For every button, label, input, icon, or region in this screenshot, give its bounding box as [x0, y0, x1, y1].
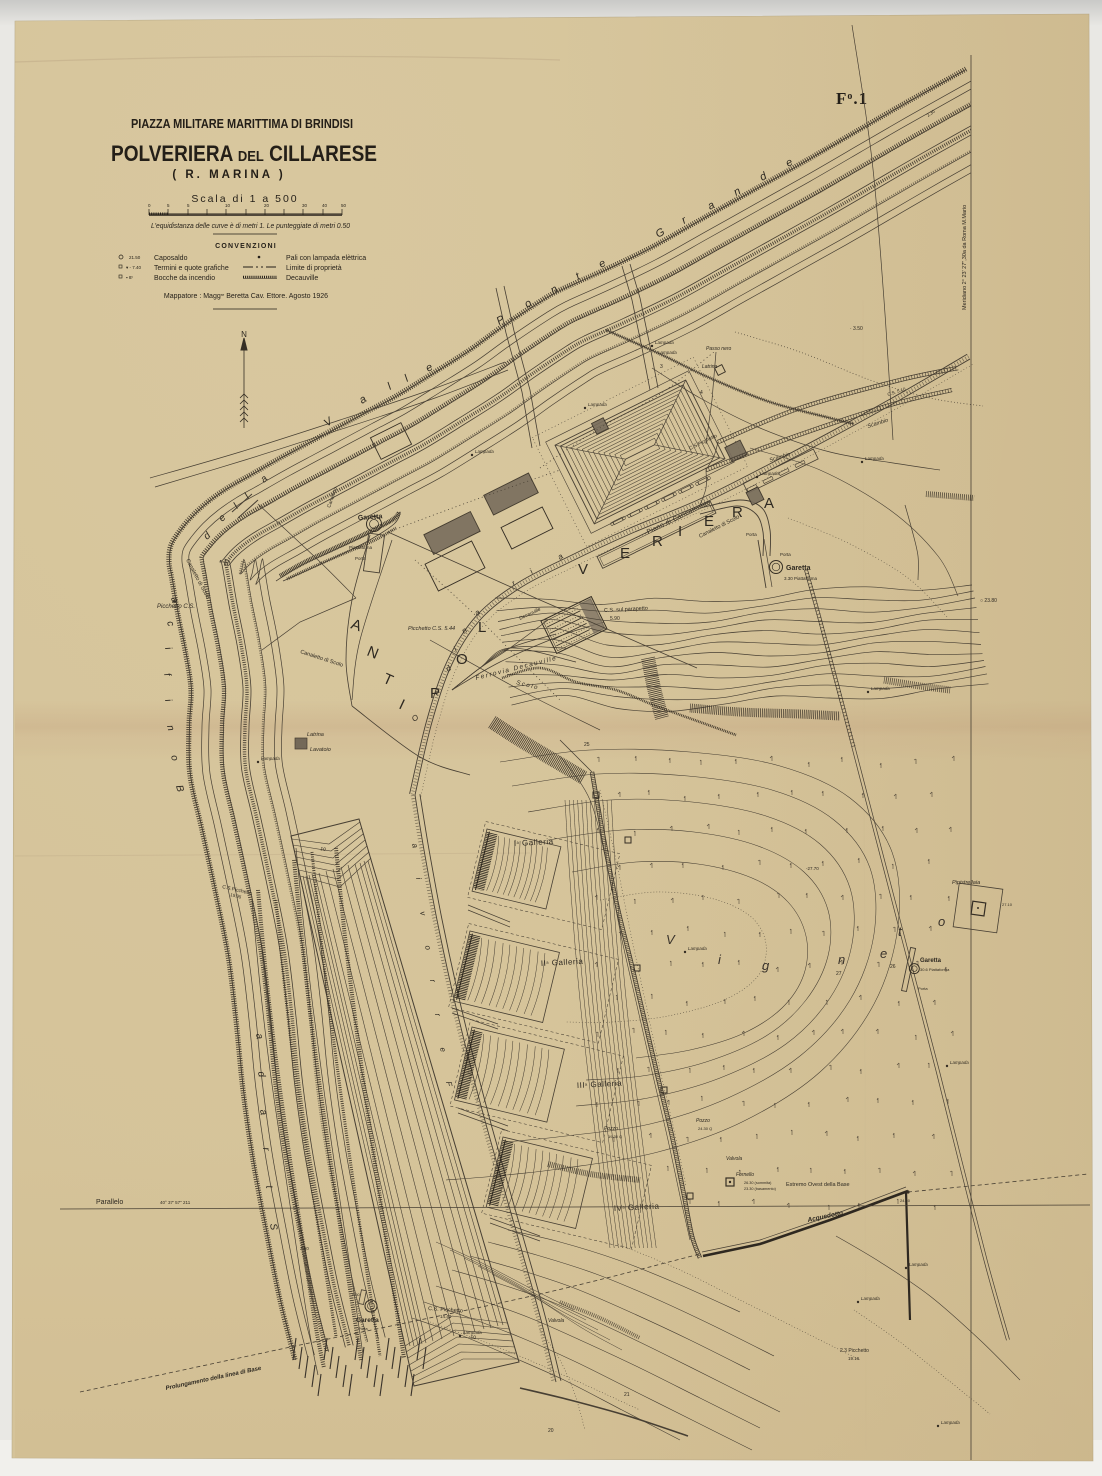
svg-text:E: E — [704, 513, 714, 530]
svg-text:27.10: 27.10 — [1002, 902, 1013, 907]
svg-text:Caposaldo: Caposaldo — [154, 255, 188, 262]
svg-text:Pali con lampada elèttrica: Pali con lampada elèttrica — [286, 255, 366, 262]
svg-text:26: 26 — [890, 964, 896, 970]
svg-text:○ 23.80: ○ 23.80 — [980, 598, 997, 604]
svg-text:Mappatore : Maggre Beretta Ca: Mappatore : Maggre Beretta Cav. Ettore. … — [164, 292, 328, 300]
svg-text:Lampada: Lampada — [760, 471, 779, 476]
svg-text:Termini e quote grafiche: Termini e quote grafiche — [154, 265, 229, 272]
svg-text:Piattaforma: Piattaforma — [349, 545, 373, 550]
svg-text:Porta: Porta — [746, 532, 757, 537]
svg-text:E: E — [620, 545, 630, 562]
svg-text:Lampada: Lampada — [688, 946, 707, 951]
svg-text:-27.70: -27.70 — [806, 866, 819, 871]
svg-text:L: L — [478, 619, 486, 636]
svg-text:50: 50 — [341, 203, 347, 208]
svg-text:Pozzo: Pozzo — [604, 1126, 618, 1132]
svg-text:PIAZZA MILITARE MARITTIMA DI B: PIAZZA MILITARE MARITTIMA DI BRINDISI — [131, 116, 353, 131]
svg-text:Lampada: Lampada — [658, 350, 677, 355]
svg-text:Porta: Porta — [918, 986, 928, 991]
svg-text:5.60: 5.60 — [352, 1292, 361, 1297]
svg-text:Bocche da incendio: Bocche da incendio — [154, 275, 215, 282]
svg-text:Decauville: Decauville — [286, 275, 318, 282]
svg-text:Lampada: Lampada — [941, 1420, 960, 1425]
svg-text:▾ - 7.40: ▾ - 7.40 — [126, 265, 142, 270]
svg-text:R: R — [732, 504, 743, 521]
svg-text:26.30 (sommita): 26.30 (sommita) — [744, 1181, 772, 1185]
svg-text:25: 25 — [584, 742, 590, 748]
svg-text:Picchetto C.S.: Picchetto C.S. — [157, 604, 195, 610]
svg-text:23.30 (basamento): 23.30 (basamento) — [744, 1187, 777, 1191]
svg-text:Lampada: Lampada — [871, 686, 890, 691]
svg-text:30: 30 — [302, 203, 308, 208]
svg-text:A: A — [764, 495, 774, 512]
svg-text:Lampada: Lampada — [655, 340, 674, 345]
svg-text:Limite di proprietà: Limite di proprietà — [286, 265, 342, 272]
svg-text:V: V — [666, 932, 676, 947]
svg-text:Lampada: Lampada — [588, 402, 607, 407]
svg-text:Lampada: Lampada — [909, 1262, 928, 1267]
svg-text:27: 27 — [836, 971, 842, 977]
svg-text:19.30 Q: 19.30 Q — [608, 1134, 622, 1139]
svg-text:Garetta: Garetta — [786, 565, 811, 572]
svg-text:V: V — [578, 561, 588, 578]
svg-text:Estremo Ovest della Base: Estremo Ovest della Base — [786, 1182, 850, 1188]
svg-text:2.80: 2.80 — [300, 1246, 309, 1251]
svg-text:10: 10 — [225, 203, 231, 208]
svg-text:Scala di 1 a 500: Scala di 1 a 500 — [191, 193, 298, 205]
svg-text:L'equidistanza delle curve è d: L'equidistanza delle curve è di metri 1.… — [151, 221, 350, 230]
svg-text:4: 4 — [700, 390, 703, 396]
svg-text:o: o — [938, 914, 945, 929]
svg-text:Pipistrellaia: Pipistrellaia — [952, 880, 980, 886]
svg-text:Porta: Porta — [358, 1326, 368, 1331]
svg-text:Fornello: Fornello — [736, 1172, 754, 1178]
svg-text:Lampada: Lampada — [950, 1060, 969, 1065]
svg-text:CONVENZIONI: CONVENZIONI — [215, 243, 277, 250]
svg-text:Porta: Porta — [355, 556, 366, 561]
svg-text:30.6 Piattaforma: 30.6 Piattaforma — [920, 967, 950, 972]
svg-text:Latrina: Latrina — [307, 732, 324, 738]
svg-text:Picchetto C.S. 5.44: Picchetto C.S. 5.44 — [408, 626, 455, 632]
svg-text:Meridiano 2° 23' 27",30a da: Meridiano 2° 23' 27",30a da Roma M.Mario — [962, 205, 968, 310]
svg-text:Garetta: Garetta — [356, 1317, 379, 1324]
svg-text:40° 37' 57" 211: 40° 37' 57" 211 — [160, 1200, 191, 1205]
svg-text:Lampada: Lampada — [261, 756, 280, 761]
svg-text:24.30: 24.30 — [900, 1198, 911, 1203]
svg-text:· 3.50: · 3.50 — [850, 326, 863, 332]
svg-text:e: e — [880, 946, 887, 961]
svg-text:Lampada: Lampada — [463, 1330, 482, 1335]
svg-text:Porta: Porta — [780, 552, 791, 557]
svg-text:21.50: 21.50 — [129, 255, 141, 260]
svg-text:g: g — [762, 958, 770, 973]
svg-text:Valvola: Valvola — [548, 1318, 564, 1324]
svg-text:Lampada: Lampada — [475, 449, 494, 454]
svg-text:▪ 8ʸ: ▪ 8ʸ — [126, 275, 133, 280]
svg-text:Parallelo: Parallelo — [96, 1199, 123, 1206]
svg-text:3: 3 — [660, 364, 663, 370]
svg-text:Lavatoio: Lavatoio — [310, 747, 331, 753]
svg-text:I: I — [678, 523, 682, 540]
svg-text:2.3 Picchetto: 2.3 Picchetto — [840, 1348, 869, 1354]
svg-text:n: n — [838, 952, 845, 967]
svg-text:Lampada: Lampada — [861, 1296, 880, 1301]
svg-text:3.30 Piattaforma: 3.30 Piattaforma — [784, 576, 818, 581]
svg-text:24.30 Q: 24.30 Q — [698, 1126, 712, 1131]
svg-text:40: 40 — [322, 203, 328, 208]
svg-text:Passo nero: Passo nero — [706, 346, 732, 352]
svg-text:N: N — [241, 330, 247, 339]
svg-text:( R. MARINA ): ( R. MARINA ) — [172, 169, 285, 181]
svg-text:R: R — [652, 533, 663, 550]
svg-text:O: O — [456, 651, 468, 668]
svg-text:Lampada: Lampada — [865, 456, 884, 461]
svg-text:Garetta: Garetta — [920, 958, 942, 964]
svg-text:21: 21 — [624, 1392, 630, 1398]
svg-text:20: 20 — [264, 203, 270, 208]
svg-text:Valvola: Valvola — [726, 1156, 742, 1162]
svg-text:20: 20 — [548, 1428, 554, 1434]
svg-text:Pozzo: Pozzo — [696, 1118, 710, 1124]
